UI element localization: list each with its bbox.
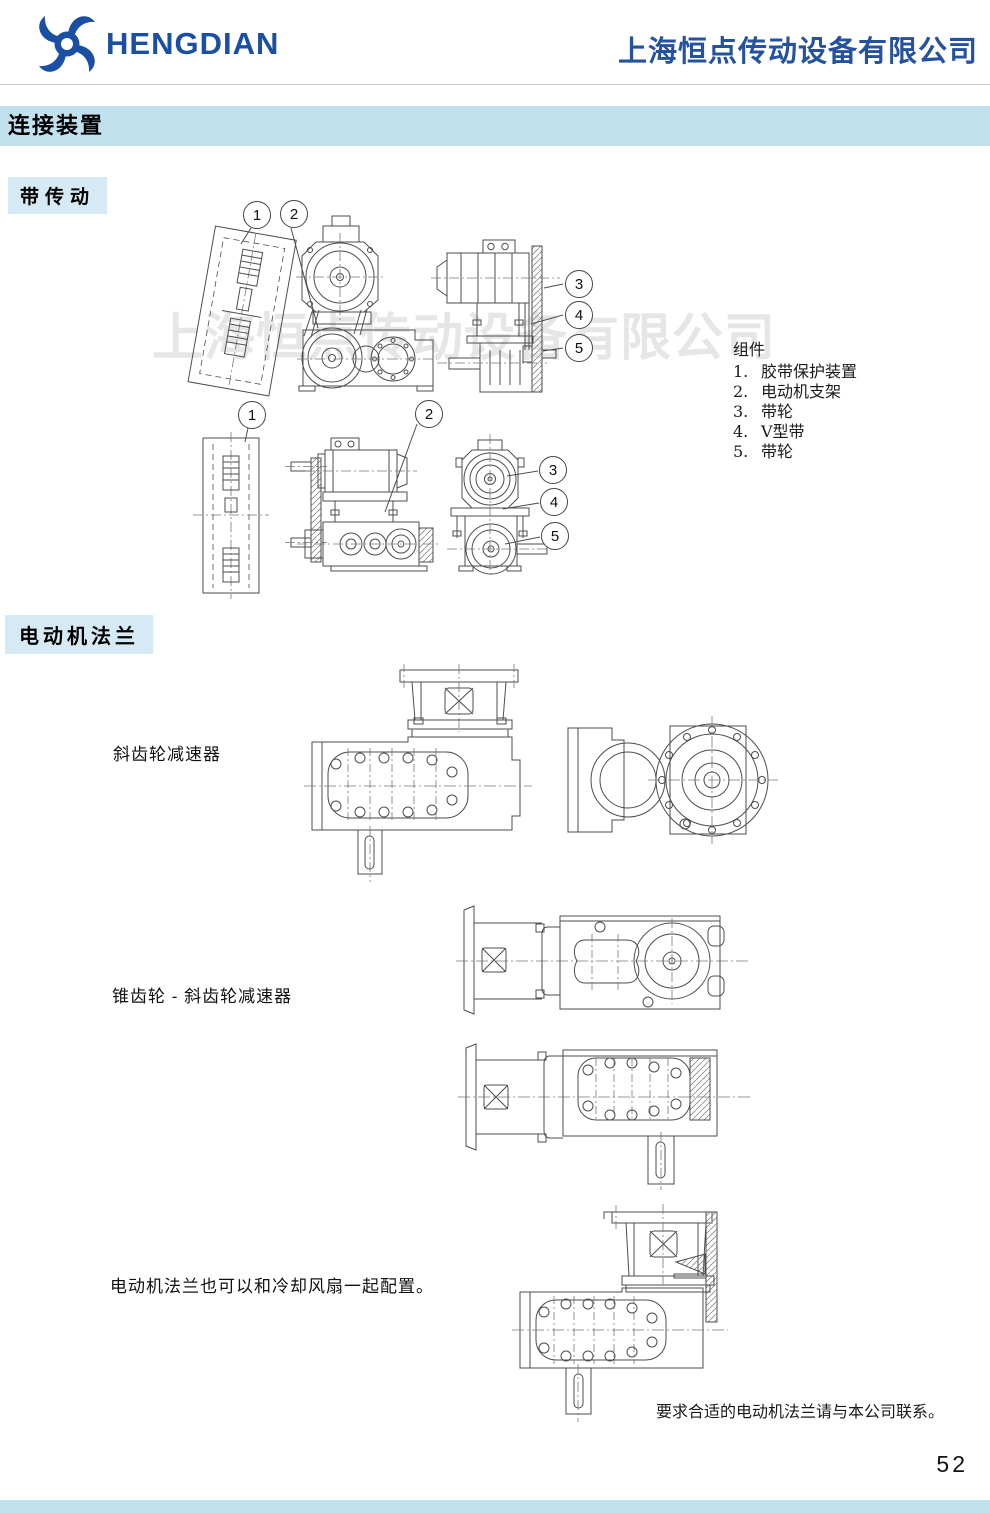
section-title: 连接装置 xyxy=(8,113,104,138)
parts-list-title: 组件 xyxy=(733,340,857,360)
logo-text: HENGDIAN xyxy=(106,26,279,62)
callout-2: 2 xyxy=(280,200,308,228)
parts-list-item: 1. 胶带保护装置 xyxy=(733,362,857,382)
callout-2b: 2 xyxy=(415,400,443,428)
parts-list-item: 3. 带轮 xyxy=(733,402,857,422)
bevel-helical-reducer-figure xyxy=(450,900,760,1200)
callout-3: 3 xyxy=(565,270,593,298)
belt-drive-heading: 带传动 xyxy=(8,177,107,214)
company-name: 上海恒点传动设备有限公司 xyxy=(618,28,978,70)
belt-drive-figure xyxy=(185,200,720,605)
label-helical-reducer: 斜齿轮减速器 xyxy=(113,740,221,765)
catalog-page: HENGDIAN 上海恒点传动设备有限公司 连接装置 带传动 上海恒点传动设备有… xyxy=(0,0,990,1513)
label-fan-note: 电动机法兰也可以和冷却风扇一起配置。 xyxy=(110,1272,434,1297)
contact-note: 要求合适的电动机法兰请与本公司联系。 xyxy=(656,1398,944,1422)
parts-list: 组件 1. 胶带保护装置 2. 电动机支架 3. 带轮 4. V型带 5. 带轮 xyxy=(733,340,857,462)
flange-with-fan-figure xyxy=(500,1200,810,1430)
callout-1: 1 xyxy=(243,201,271,229)
callout-4b: 4 xyxy=(540,488,568,516)
parts-list-item: 4. V型带 xyxy=(733,422,857,442)
motor-flange-heading: 电动机法兰 xyxy=(5,615,153,654)
logo-pinwheel-icon xyxy=(34,10,100,78)
page-number: 52 xyxy=(936,1451,968,1478)
header-divider xyxy=(0,84,990,85)
parts-list-item: 5. 带轮 xyxy=(733,442,857,462)
callout-5: 5 xyxy=(565,334,593,362)
callout-5b: 5 xyxy=(541,522,569,550)
callout-1b: 1 xyxy=(238,401,266,429)
footer-bar xyxy=(0,1500,990,1513)
label-bevel-helical-reducer: 锥齿轮 - 斜齿轮减速器 xyxy=(112,982,292,1007)
callout-3b: 3 xyxy=(539,456,567,484)
callout-4: 4 xyxy=(565,301,593,329)
helical-reducer-figure xyxy=(300,660,810,900)
parts-list-item: 2. 电动机支架 xyxy=(733,382,857,402)
section-title-bar: 连接装置 xyxy=(0,106,990,146)
